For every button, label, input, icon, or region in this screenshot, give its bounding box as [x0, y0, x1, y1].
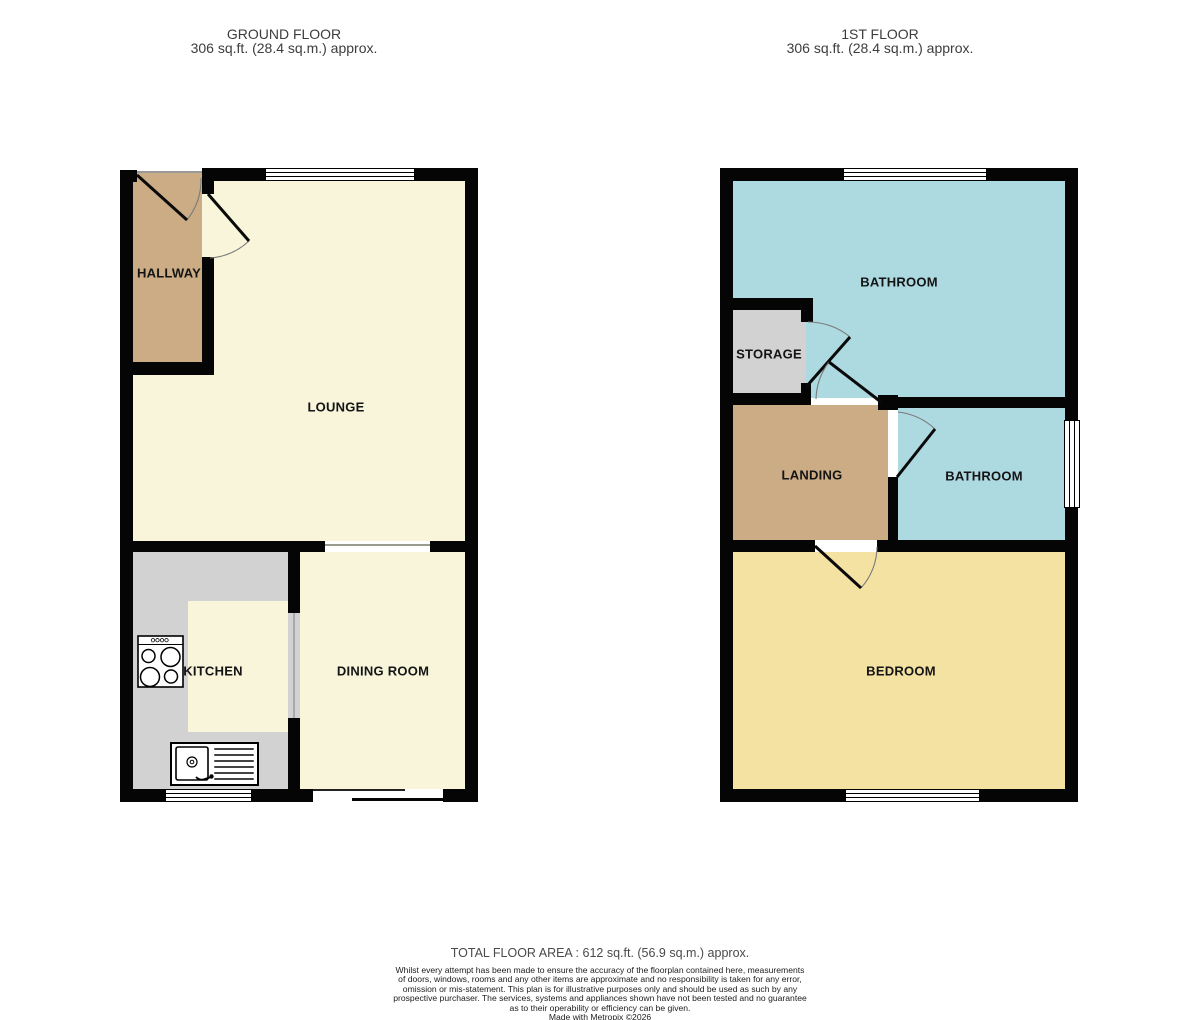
wall [133, 362, 214, 375]
room-label-bathroom-top: BATHROOM [860, 275, 938, 290]
first-floor-area: 306 sq.ft. (28.4 sq.m.) approx. [700, 42, 1060, 56]
front-door-opening-line [137, 171, 202, 173]
wall [987, 168, 1078, 181]
wall [1065, 508, 1078, 802]
wall [202, 257, 214, 372]
ground-floor-area: 306 sq.ft. (28.4 sq.m.) approx. [104, 42, 464, 56]
wall [720, 789, 845, 802]
wall [720, 168, 733, 802]
wall [288, 718, 300, 789]
room-label-storage: STORAGE [736, 347, 802, 362]
window [265, 168, 415, 181]
disclaimer: Whilst every attempt has been made to en… [0, 966, 1200, 1020]
wall [733, 298, 813, 310]
wall [465, 168, 478, 802]
sink-icon [170, 742, 259, 786]
room-label-kitchen: KITCHEN [183, 664, 243, 679]
wall [252, 789, 313, 802]
window [843, 168, 987, 181]
kitchen-dining-opening-line [293, 613, 295, 718]
wall [720, 168, 843, 181]
wall [877, 540, 1065, 552]
first-floor-header: 1ST FLOOR 306 sq.ft. (28.4 sq.m.) approx… [700, 28, 1060, 55]
stove-icon [137, 635, 184, 688]
wall [133, 541, 325, 552]
wall [733, 540, 815, 552]
wall [120, 789, 165, 802]
wall [202, 170, 214, 194]
credit-line: Made with Metropix ©2026 [0, 1013, 1200, 1020]
window [845, 789, 980, 802]
footer: TOTAL FLOOR AREA : 612 sq.ft. (56.9 sq.m… [0, 946, 1200, 1020]
patio-door-line [352, 798, 443, 801]
wall [430, 541, 465, 552]
wall [733, 393, 811, 405]
wall [898, 397, 1065, 408]
room-label-lounge: LOUNGE [307, 400, 364, 415]
wall [443, 789, 478, 802]
window [1064, 420, 1080, 508]
patio-opening-line [313, 789, 405, 791]
wall [878, 395, 898, 410]
room-label-dining-room: DINING ROOM [337, 664, 429, 679]
wall [1065, 168, 1078, 420]
wall [120, 170, 137, 182]
wall [288, 552, 300, 613]
lounge-dining-opening-line [325, 544, 430, 546]
room-label-bedroom: BEDROOM [866, 664, 936, 679]
wall [801, 310, 813, 322]
ground-floor-header: GROUND FLOOR 306 sq.ft. (28.4 sq.m.) app… [104, 28, 464, 55]
room-label-bathroom-right: BATHROOM [945, 469, 1023, 484]
room-label-hallway: HALLWAY [137, 266, 201, 281]
wall [980, 789, 1078, 802]
floorplan-page: GROUND FLOOR 306 sq.ft. (28.4 sq.m.) app… [0, 0, 1200, 1020]
room-label-landing: LANDING [782, 468, 843, 483]
wall [120, 170, 133, 802]
window [165, 789, 252, 802]
total-floor-area: TOTAL FLOOR AREA : 612 sq.ft. (56.9 sq.m… [0, 946, 1200, 960]
wall [415, 168, 478, 181]
